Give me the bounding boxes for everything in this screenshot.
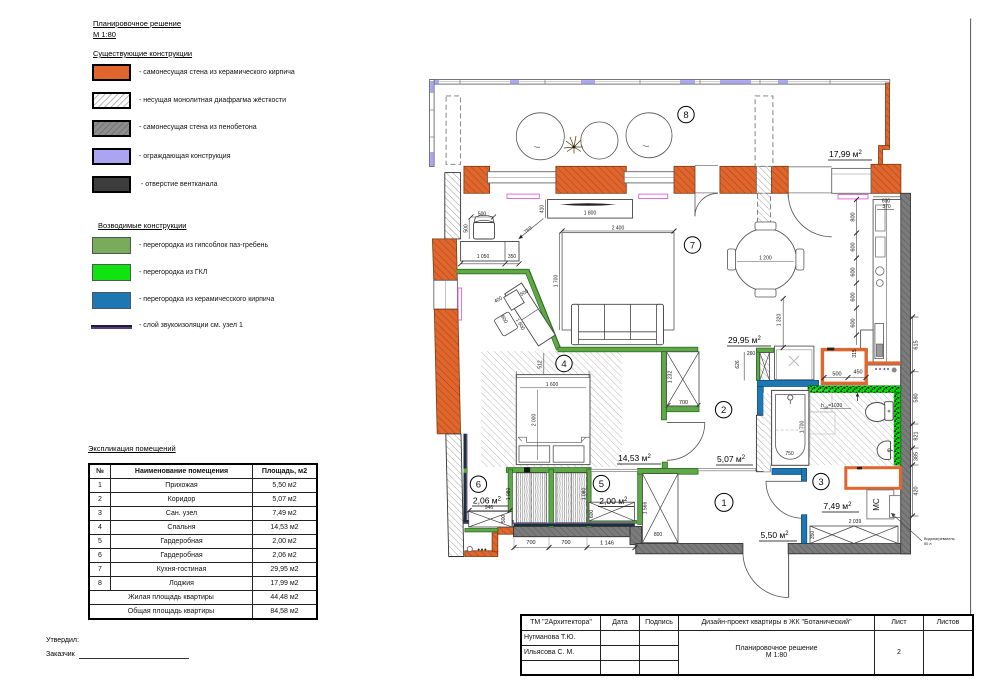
svg-text:2 400: 2 400 xyxy=(612,226,625,232)
svg-text:1 080: 1 080 xyxy=(582,488,588,501)
svg-text:1 700: 1 700 xyxy=(554,275,560,288)
svg-text:370: 370 xyxy=(882,204,891,210)
svg-text:580: 580 xyxy=(914,393,920,402)
svg-text:2,00 м2: 2,00 м2 xyxy=(599,496,628,506)
svg-text:420: 420 xyxy=(914,486,920,495)
svg-text:1 800: 1 800 xyxy=(584,211,597,217)
svg-text:1 700: 1 700 xyxy=(800,421,806,434)
svg-text:1 566: 1 566 xyxy=(643,502,649,515)
svg-text:1 080: 1 080 xyxy=(506,488,512,501)
svg-text:600: 600 xyxy=(851,242,857,251)
svg-text:5: 5 xyxy=(599,479,604,490)
svg-text:4: 4 xyxy=(561,359,566,370)
svg-text:700: 700 xyxy=(679,400,688,406)
svg-text:512: 512 xyxy=(538,360,544,369)
svg-text:350: 350 xyxy=(810,531,816,540)
svg-text:260: 260 xyxy=(747,351,756,357)
svg-text:315: 315 xyxy=(852,349,858,358)
svg-text:500: 500 xyxy=(464,224,470,233)
svg-text:410: 410 xyxy=(540,205,546,214)
svg-text:500: 500 xyxy=(501,515,507,524)
svg-text:946: 946 xyxy=(485,505,494,511)
svg-text:5,50 м2: 5,50 м2 xyxy=(761,530,790,540)
svg-text:2 000: 2 000 xyxy=(532,414,538,427)
svg-text:2,06 м2: 2,06 м2 xyxy=(473,495,502,505)
svg-text:1 050: 1 050 xyxy=(477,254,490,260)
svg-text:МС: МС xyxy=(872,498,881,511)
svg-text:2: 2 xyxy=(721,405,726,416)
svg-text:14,53 м2: 14,53 м2 xyxy=(618,453,651,463)
svg-text:800: 800 xyxy=(654,532,663,538)
svg-text:6: 6 xyxy=(476,480,481,491)
svg-text:1: 1 xyxy=(721,498,726,509)
svg-text:385: 385 xyxy=(914,452,920,461)
svg-text:1 600: 1 600 xyxy=(546,382,559,388)
svg-text:400: 400 xyxy=(493,295,503,305)
svg-text:17,99 м2: 17,99 м2 xyxy=(829,149,862,159)
svg-text:1 146: 1 146 xyxy=(600,541,614,547)
svg-text:500: 500 xyxy=(478,212,487,218)
svg-text:Водонагреватель: Водонагреватель xyxy=(924,537,955,541)
svg-text:5,07 м2: 5,07 м2 xyxy=(717,454,746,464)
svg-text:700: 700 xyxy=(526,540,535,546)
svg-text:615: 615 xyxy=(914,340,920,349)
svg-text:3: 3 xyxy=(818,477,823,488)
svg-text:350: 350 xyxy=(508,254,517,260)
svg-text:1 320: 1 320 xyxy=(777,314,783,327)
svg-text:600: 600 xyxy=(851,318,857,327)
svg-text:450: 450 xyxy=(853,370,862,376)
svg-text:7,49 м2: 7,49 м2 xyxy=(823,501,852,511)
svg-text:626: 626 xyxy=(735,360,741,369)
svg-text:800: 800 xyxy=(851,212,857,221)
svg-text:600: 600 xyxy=(851,267,857,276)
svg-text:1 200: 1 200 xyxy=(759,256,772,262)
svg-text:750: 750 xyxy=(785,451,794,457)
svg-text:600: 600 xyxy=(589,510,595,519)
svg-text:821: 821 xyxy=(914,431,920,440)
svg-text:29,95 м2: 29,95 м2 xyxy=(728,335,761,345)
svg-text:600: 600 xyxy=(851,292,857,301)
svg-text:7: 7 xyxy=(690,241,695,252)
svg-text:700: 700 xyxy=(561,540,570,546)
svg-text:500: 500 xyxy=(832,372,841,378)
svg-text:1 232: 1 232 xyxy=(668,371,674,384)
svg-text:2 039: 2 039 xyxy=(849,519,862,525)
svg-text:8: 8 xyxy=(683,110,688,121)
svg-text:50 л: 50 л xyxy=(924,542,932,546)
